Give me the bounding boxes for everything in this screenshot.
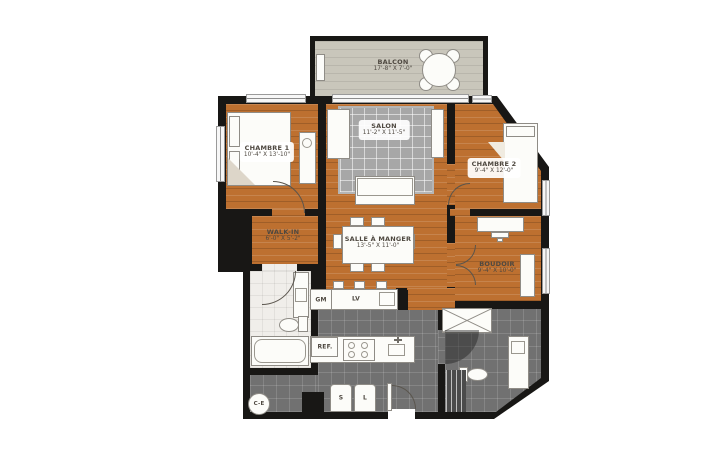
toilet-bowl [467, 368, 488, 381]
powder-sink [511, 341, 525, 354]
stove-burner [348, 342, 355, 349]
monitor-stand [497, 238, 503, 242]
room-dims: 10'-4" X 13'-10" [244, 152, 290, 160]
room-dims: 9'-4" X 12'-0" [472, 168, 517, 176]
entry-closet [446, 370, 466, 412]
room-label-chambre1: CHAMBRE 1 10'-4" X 13'-10" [240, 142, 294, 162]
room-label-salon: SALON 11'-2" X 11'-5" [359, 120, 410, 140]
shower-x [443, 309, 491, 332]
opening-chambre2-door2 [450, 209, 470, 216]
blanket-fold [228, 158, 255, 185]
room-name: CHAMBRE 1 [245, 144, 290, 152]
stove-burner [348, 351, 355, 358]
window-chambre2-right [542, 180, 550, 216]
room-name: BOUDOIR [479, 260, 515, 268]
kitchen-faucet [397, 337, 399, 343]
floor-plan: BALCON 17'-8" X 7'-0" CHAMBRE 1 10'-4" X… [0, 0, 703, 459]
room-label-salle-a-manger: SALLE À MANGER 13'-5" X 11'-0" [345, 235, 412, 251]
window-chambre2-top [472, 95, 492, 103]
stove-burner [361, 342, 368, 349]
island-sink [379, 292, 395, 306]
bathtub-basin [254, 339, 306, 363]
stove-burner [361, 351, 368, 358]
wall-nook [226, 216, 252, 264]
window-patio-door [332, 94, 469, 103]
toilet-tank [298, 316, 308, 332]
room-dims: 13'-5" X 11'-0" [345, 243, 412, 251]
opening-boudoir-french-door [447, 243, 455, 287]
room-label-boudoir: BOUDOIR 9'-4" X 10'-0" [478, 260, 517, 276]
room-name: WALK-IN [267, 228, 299, 236]
bathroom-sink [295, 288, 307, 302]
entry-door-opening [388, 409, 415, 419]
opening-bathroom-door [262, 264, 297, 271]
desk [477, 217, 524, 232]
boudoir-closet [520, 254, 535, 297]
label-washer: L [363, 395, 367, 402]
room-name: SALLE À MANGER [345, 235, 412, 243]
patio-table [422, 53, 456, 87]
label-water-heater: C-E [254, 401, 265, 407]
balcony-planter [316, 54, 325, 81]
kitchen-stool [376, 281, 387, 289]
label-dishwasher: LV [352, 296, 360, 303]
room-label-walkin: WALK-IN 6'-0" X 5'-2" [265, 228, 300, 244]
window-chambre1-left [216, 126, 225, 182]
label-dryer: S [339, 395, 344, 402]
wall-laundry-stub [302, 392, 324, 413]
salon-cabinet [327, 109, 350, 159]
dining-chair [371, 217, 385, 226]
room-dims: 17'-8" X 7'-0" [374, 66, 413, 74]
kitchen-sink [388, 344, 405, 356]
pillow [229, 116, 240, 147]
window-boudoir-right [542, 248, 550, 294]
room-dims: 11'-2" X 11'-5" [363, 130, 406, 138]
dining-chair [350, 263, 364, 272]
dining-chair [333, 234, 342, 249]
dining-chair [350, 217, 364, 226]
kitchen-stool [333, 281, 344, 289]
label-pantry: GM [315, 297, 326, 304]
room-dims: 6'-0" X 5'-2" [265, 236, 300, 244]
room-name: SALON [371, 122, 397, 130]
opening-powder-door [438, 330, 445, 364]
label-fridge: REF. [317, 344, 332, 351]
dining-chair [371, 263, 385, 272]
floor-passage [408, 288, 455, 310]
tv-console [431, 109, 444, 158]
room-dims: 9'-4" X 10'-0" [478, 268, 517, 276]
room-name: CHAMBRE 2 [472, 160, 517, 168]
room-label-chambre2: CHAMBRE 2 9'-4" X 12'-0" [468, 158, 521, 178]
kitchen-stool [354, 281, 365, 289]
dresser-knob [302, 138, 312, 148]
room-name: BALCON [377, 58, 408, 66]
window-chambre1-top [246, 94, 306, 103]
pillow [506, 126, 535, 137]
sofa-cushion-line [357, 178, 413, 196]
room-label-balcon: BALCON 17'-8" X 7'-0" [374, 58, 413, 74]
toilet-bowl [279, 318, 299, 332]
